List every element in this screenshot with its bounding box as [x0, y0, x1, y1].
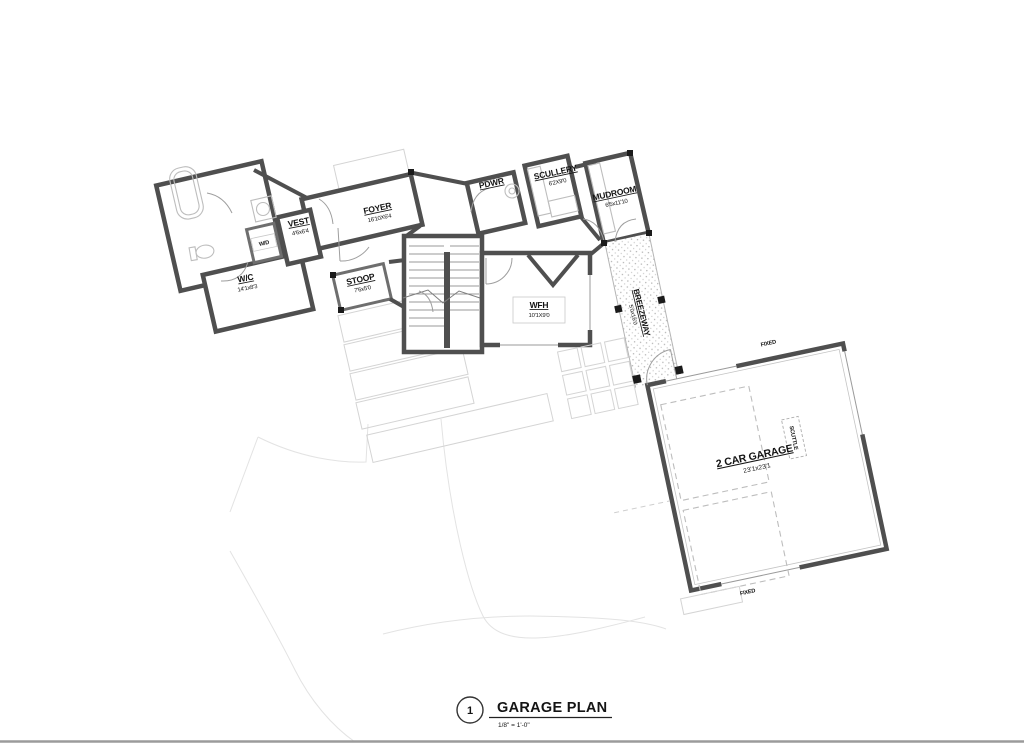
- site-lines: [230, 419, 666, 742]
- wfh-dims: 10'1X9'0: [529, 313, 551, 319]
- plan-title: GARAGE PLAN: [497, 700, 607, 716]
- plan-scale: 1/8" = 1'-0": [498, 722, 530, 729]
- detail-number: 1: [467, 705, 473, 717]
- wfh-label: WFH: [530, 300, 549, 310]
- roof-line: [614, 501, 670, 513]
- wfh-label-group: WFH 10'1X9'0: [513, 297, 565, 323]
- wfh-window-bottom: [500, 341, 558, 349]
- floor-plan-sheet: SCUTTLE 2 CAR GARAGE 23'1x23'1 FIXED FIX…: [0, 0, 1024, 745]
- stair-core: [403, 236, 483, 352]
- fixed-top-label: FIXED: [760, 339, 777, 348]
- paver-grid: [558, 338, 639, 419]
- title-block: 1 GARAGE PLAN 1/8" = 1'-0": [457, 697, 612, 729]
- wfh-window-right: [586, 275, 594, 330]
- fixed-bottom-label: FIXED: [740, 588, 757, 597]
